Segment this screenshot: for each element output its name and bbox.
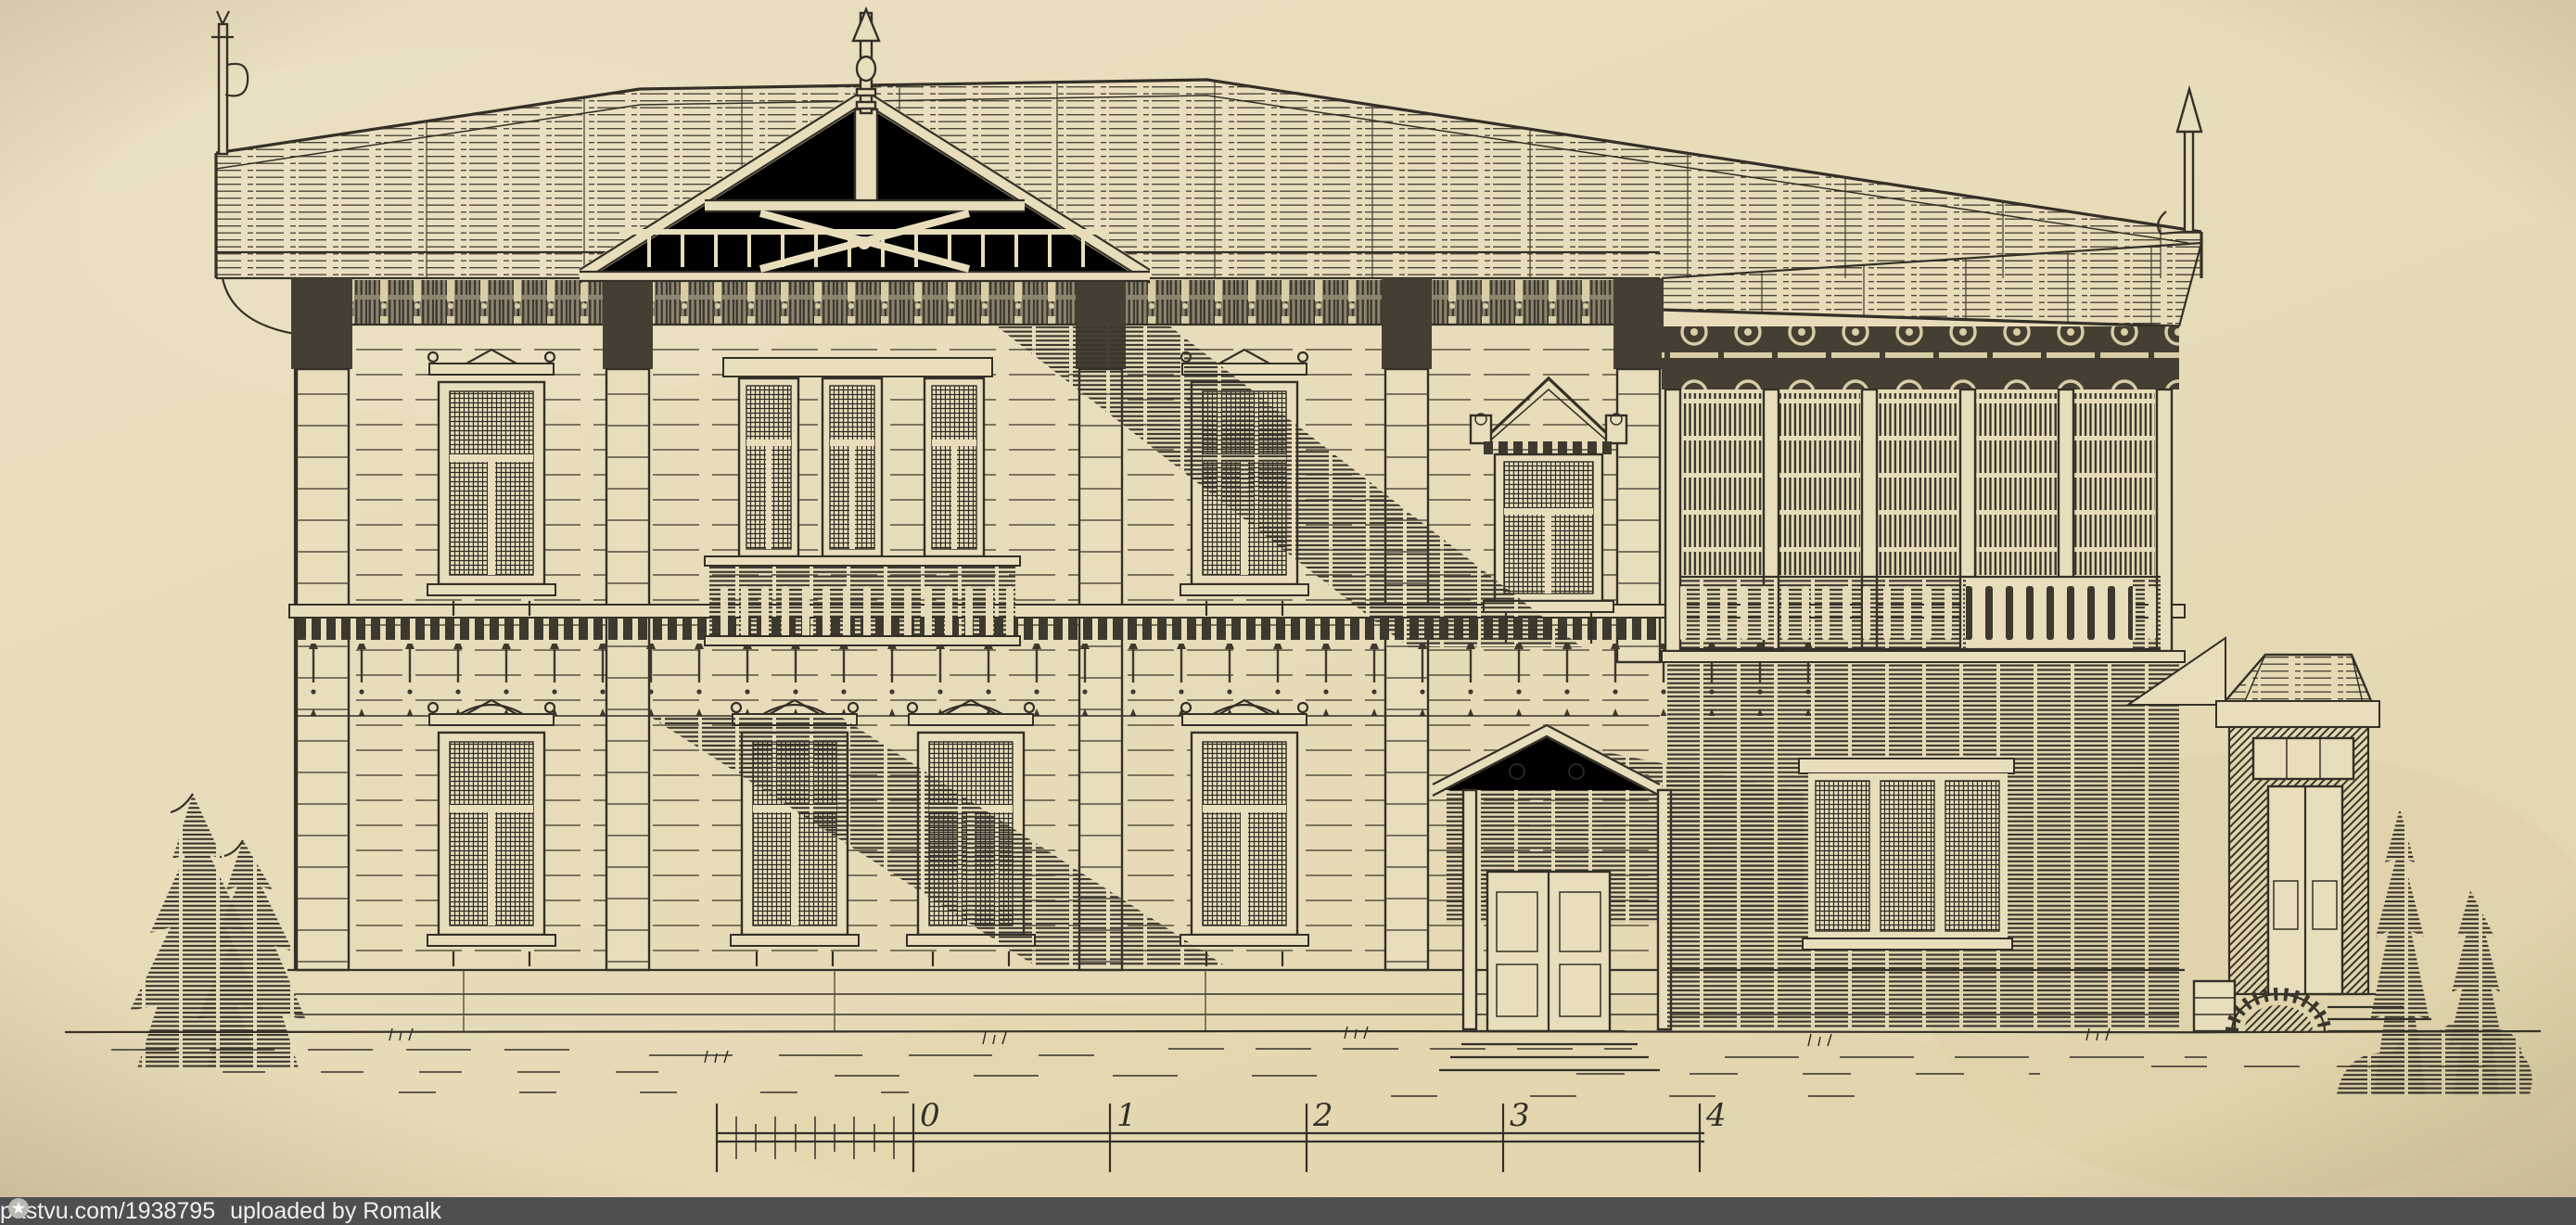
watermark-photo-url: pastvu.com/1938795 <box>0 1197 215 1225</box>
watermark-bar: pastvu.com/1938795 uploaded by Romalk <box>0 1197 2576 1225</box>
vignette-overlay <box>0 0 2576 1225</box>
watermark-uploader-credit: uploaded by Romalk <box>230 1197 441 1225</box>
pastvu-logo-star-in-circle-icon <box>7 1197 30 1219</box>
engraving-canvas: 0 1 2 3 4 <box>0 0 2576 1225</box>
scanned-drawing-page: 0 1 2 3 4 pastvu.com/1938795 uploaded by… <box>0 0 2576 1225</box>
